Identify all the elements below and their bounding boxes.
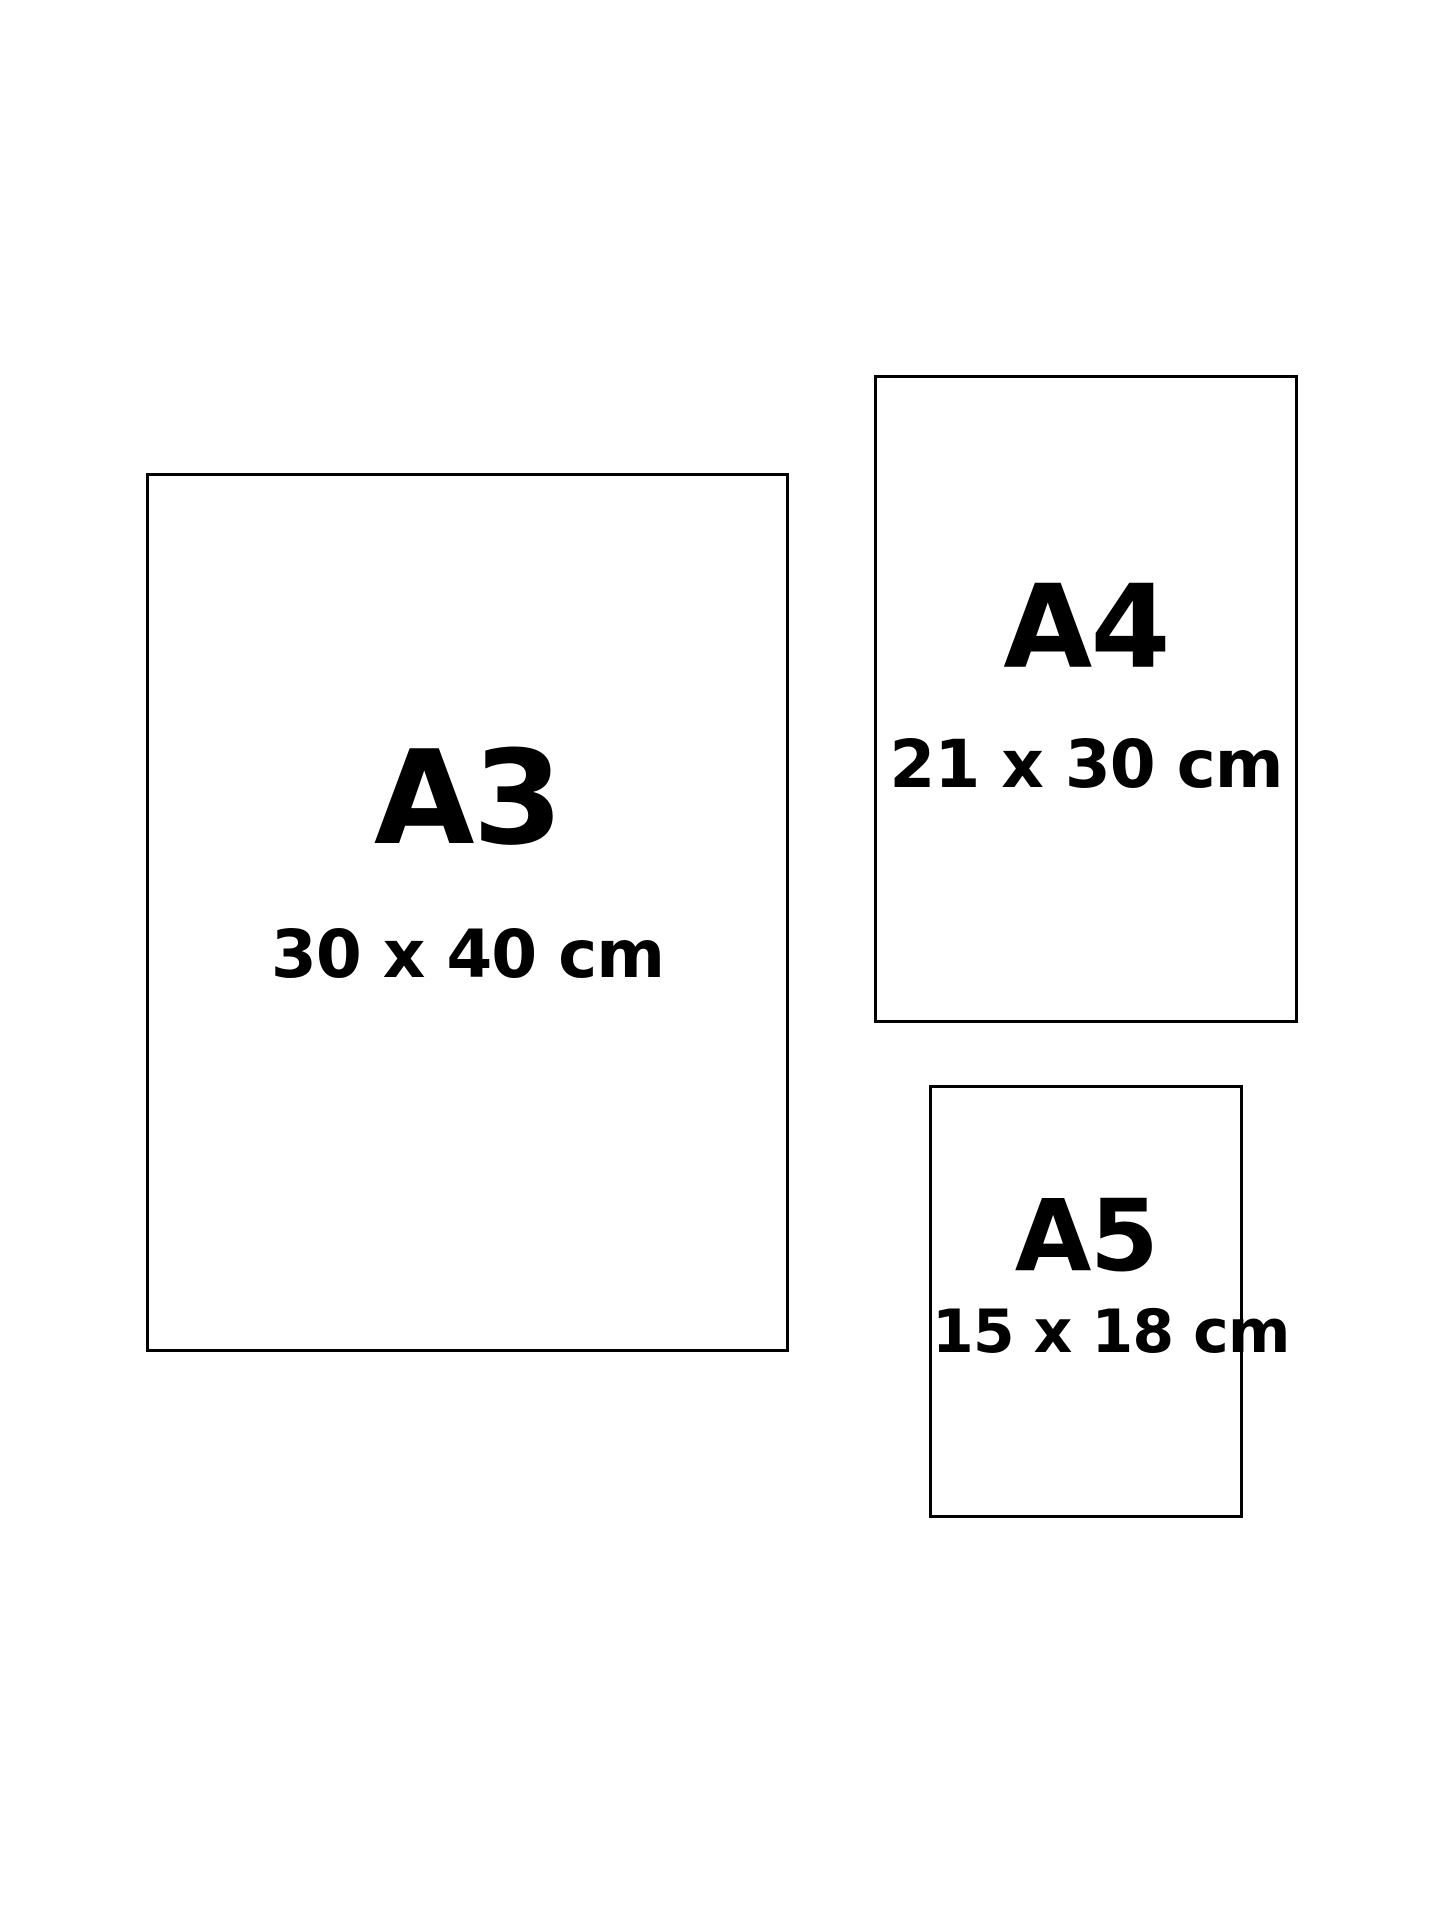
paper-a4-label: A4 <box>877 562 1295 694</box>
paper-a5-dimensions: 15 x 18 cm <box>932 1298 1240 1367</box>
paper-a5-label: A5 <box>932 1180 1240 1294</box>
paper-a3-outline: A3 30 x 40 cm <box>146 473 789 1352</box>
paper-a3-label: A3 <box>149 723 786 873</box>
paper-a4-outline: A4 21 x 30 cm <box>874 375 1298 1023</box>
paper-size-comparison-diagram: A3 30 x 40 cm A4 21 x 30 cm A5 15 x 18 c… <box>0 0 1445 1927</box>
paper-a4-dimensions: 21 x 30 cm <box>877 727 1295 803</box>
paper-a3-dimensions: 30 x 40 cm <box>149 917 786 993</box>
paper-a5-outline: A5 15 x 18 cm <box>929 1085 1243 1518</box>
